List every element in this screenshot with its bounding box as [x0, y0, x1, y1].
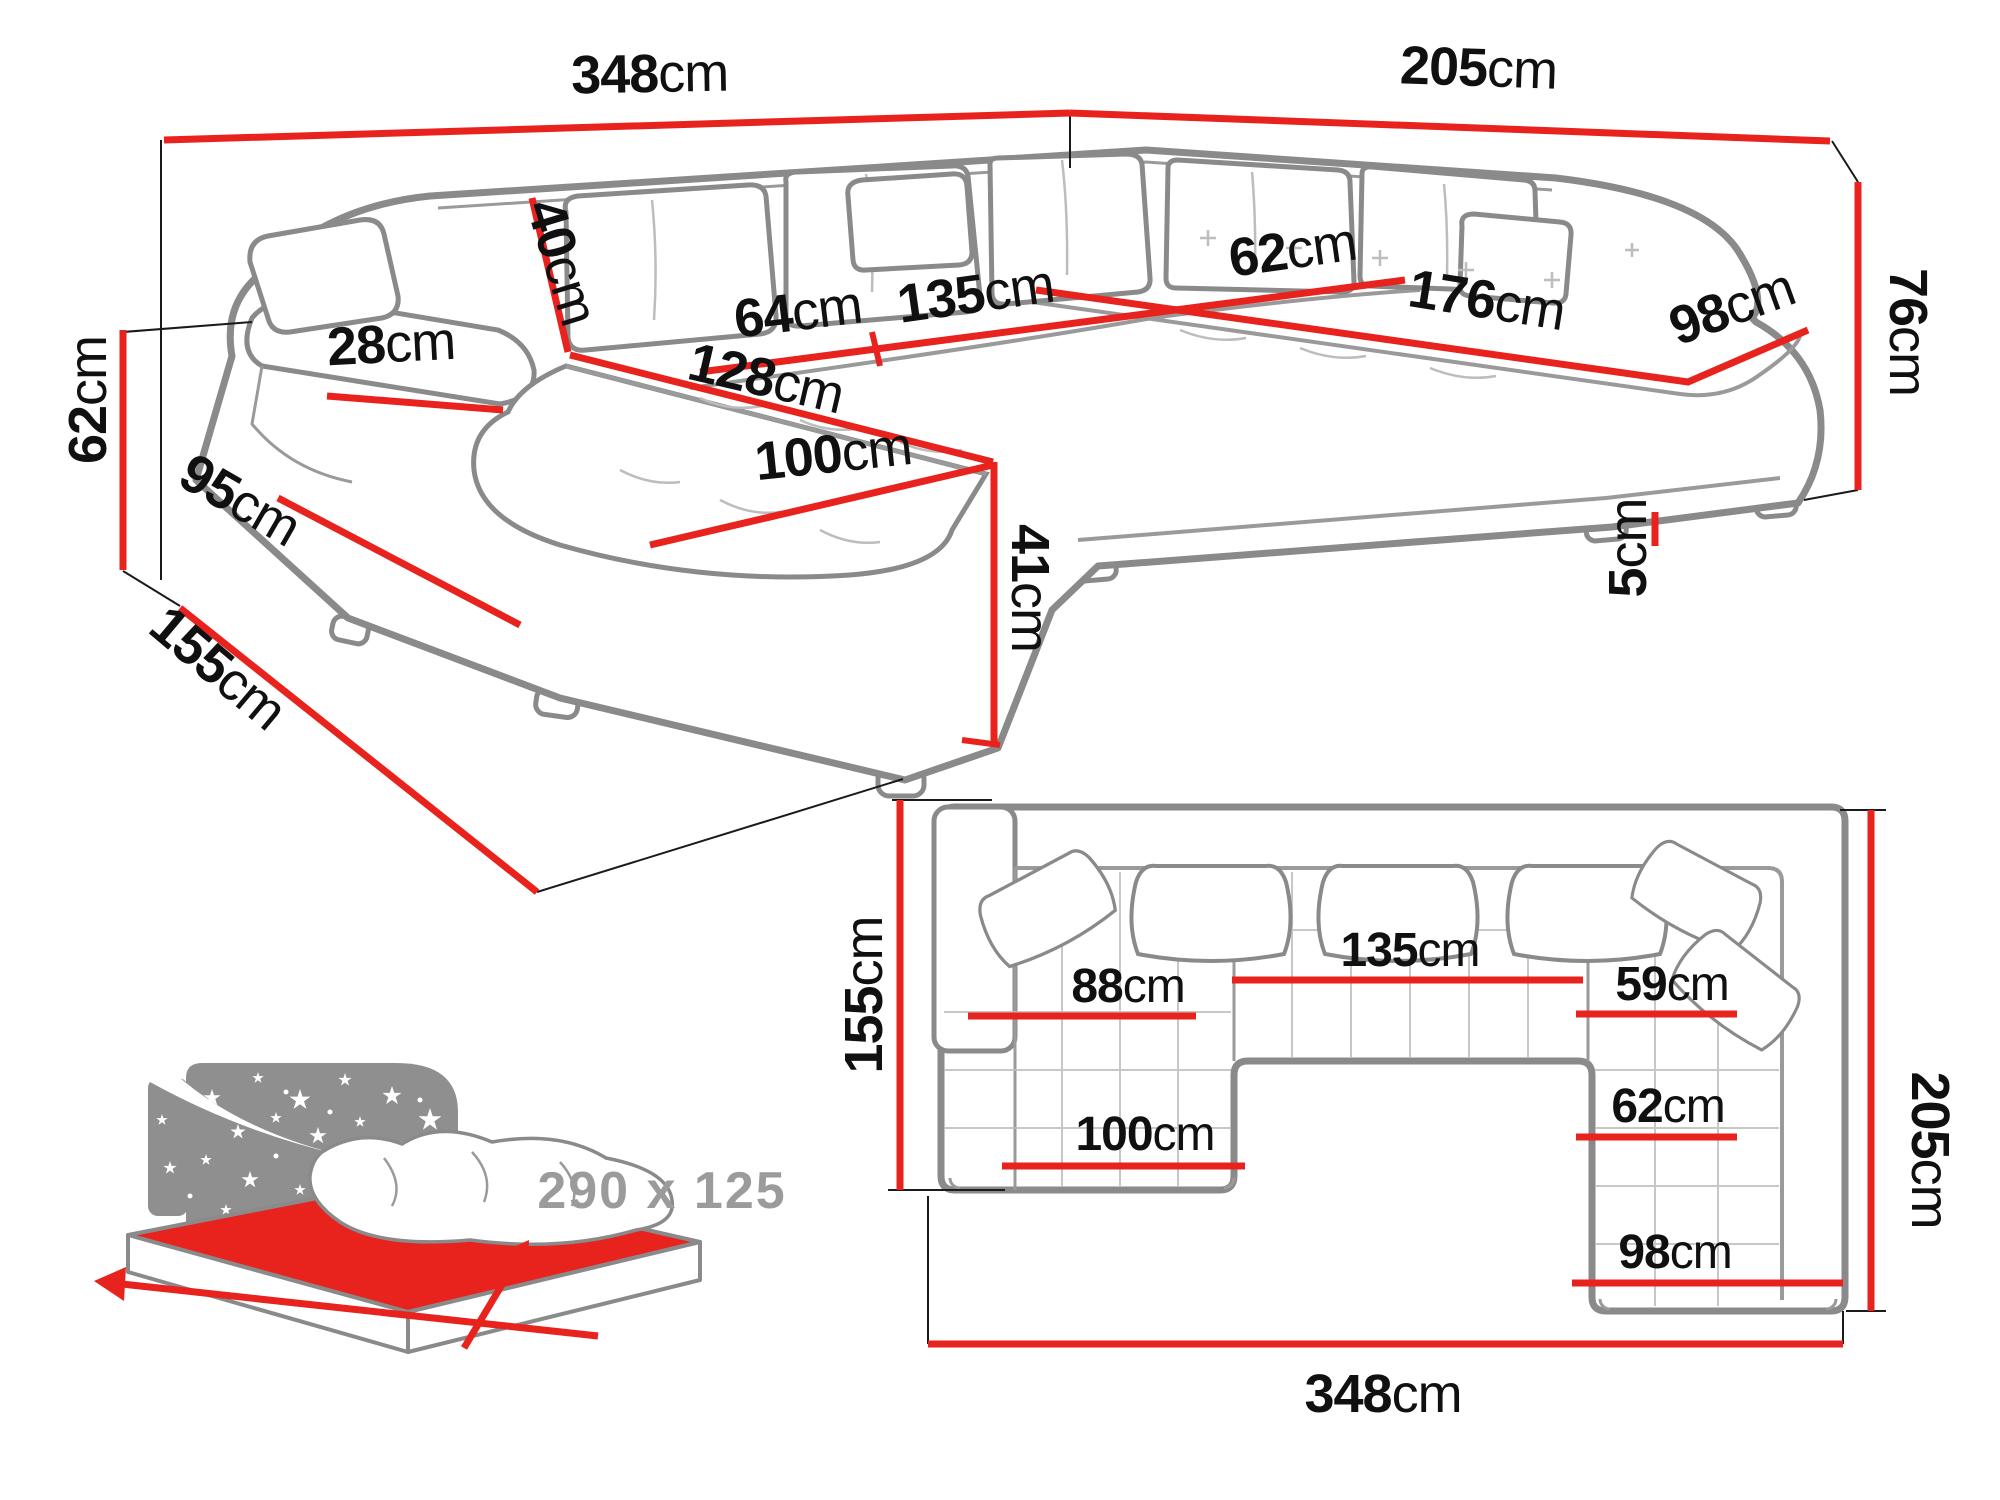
ext-line-155-to-foot [537, 779, 903, 892]
headboard-panel-left [148, 1078, 188, 1216]
ext-line-76-bottom [1804, 490, 1858, 500]
sleeping-function-icon: 290 x 125 [94, 1063, 787, 1352]
dim-label-5-leg: 5cm [1598, 498, 1658, 597]
plan-label-100: 100cm [1075, 1108, 1214, 1161]
dim-line-205-right [1070, 113, 1830, 141]
plan-label-135: 135cm [1340, 924, 1479, 977]
dim-label-62-height: 62cm [58, 336, 118, 464]
plan-label-88: 88cm [1071, 960, 1184, 1013]
perspective-view: 348cm 205cm 62cm 155cm 95cm 28cm 40cm 64… [58, 35, 1938, 892]
dim-label-155-depth: 155cm [139, 595, 298, 742]
plan-label-155: 155cm [834, 916, 894, 1073]
scatter-pillow [848, 174, 972, 270]
plan-label-348: 348cm [1304, 1364, 1461, 1424]
star-dot [284, 1090, 289, 1095]
dim-label-41-height: 41cm [1000, 524, 1060, 652]
star-dot [274, 1154, 279, 1159]
star-dot [188, 1194, 193, 1199]
dim-line-348-back [164, 113, 1070, 140]
bed-length-arrowhead [94, 1267, 126, 1301]
star-dot [328, 1110, 333, 1115]
furniture-dimensions-diagram: 348cm 205cm 62cm 155cm 95cm 28cm 40cm 64… [0, 0, 2000, 1500]
ext-line-76-top [1832, 141, 1858, 182]
dim-label-28-armrest: 28cm [326, 311, 457, 378]
star-dot [418, 1098, 423, 1103]
diagram-canvas: 348cm 205cm 62cm 155cm 95cm 28cm 40cm 64… [0, 0, 2000, 1500]
plan-label-62: 62cm [1611, 1080, 1724, 1133]
dim-label-348-back: 348cm [571, 43, 729, 106]
plan-label-59: 59cm [1615, 958, 1728, 1011]
plan-label-205: 205cm [1900, 1071, 1960, 1228]
dim-label-205-right: 205cm [1399, 35, 1558, 100]
plan-view: 155cm 205cm 348cm 88cm 135cm 59cm 62cm 1… [834, 800, 1960, 1424]
plan-label-98: 98cm [1618, 1226, 1731, 1279]
plan-pillow [1131, 866, 1290, 961]
dim-label-76-height: 76cm [1878, 268, 1938, 396]
bed-size-label: 290 x 125 [537, 1162, 786, 1220]
